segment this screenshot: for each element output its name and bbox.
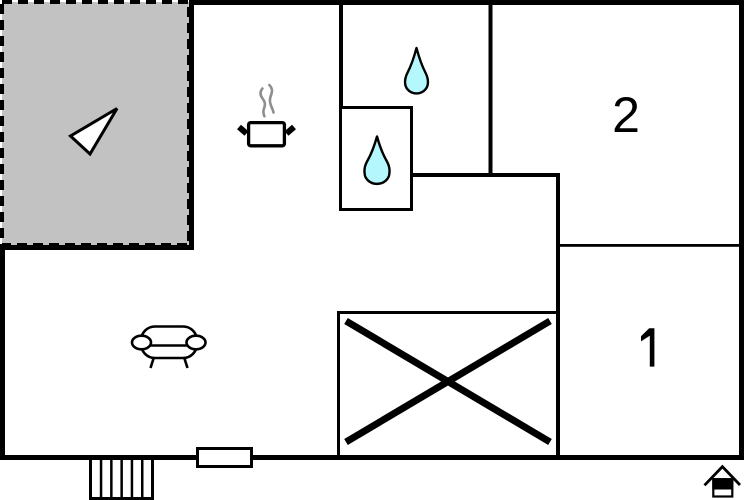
svg-text:2: 2: [612, 87, 640, 143]
